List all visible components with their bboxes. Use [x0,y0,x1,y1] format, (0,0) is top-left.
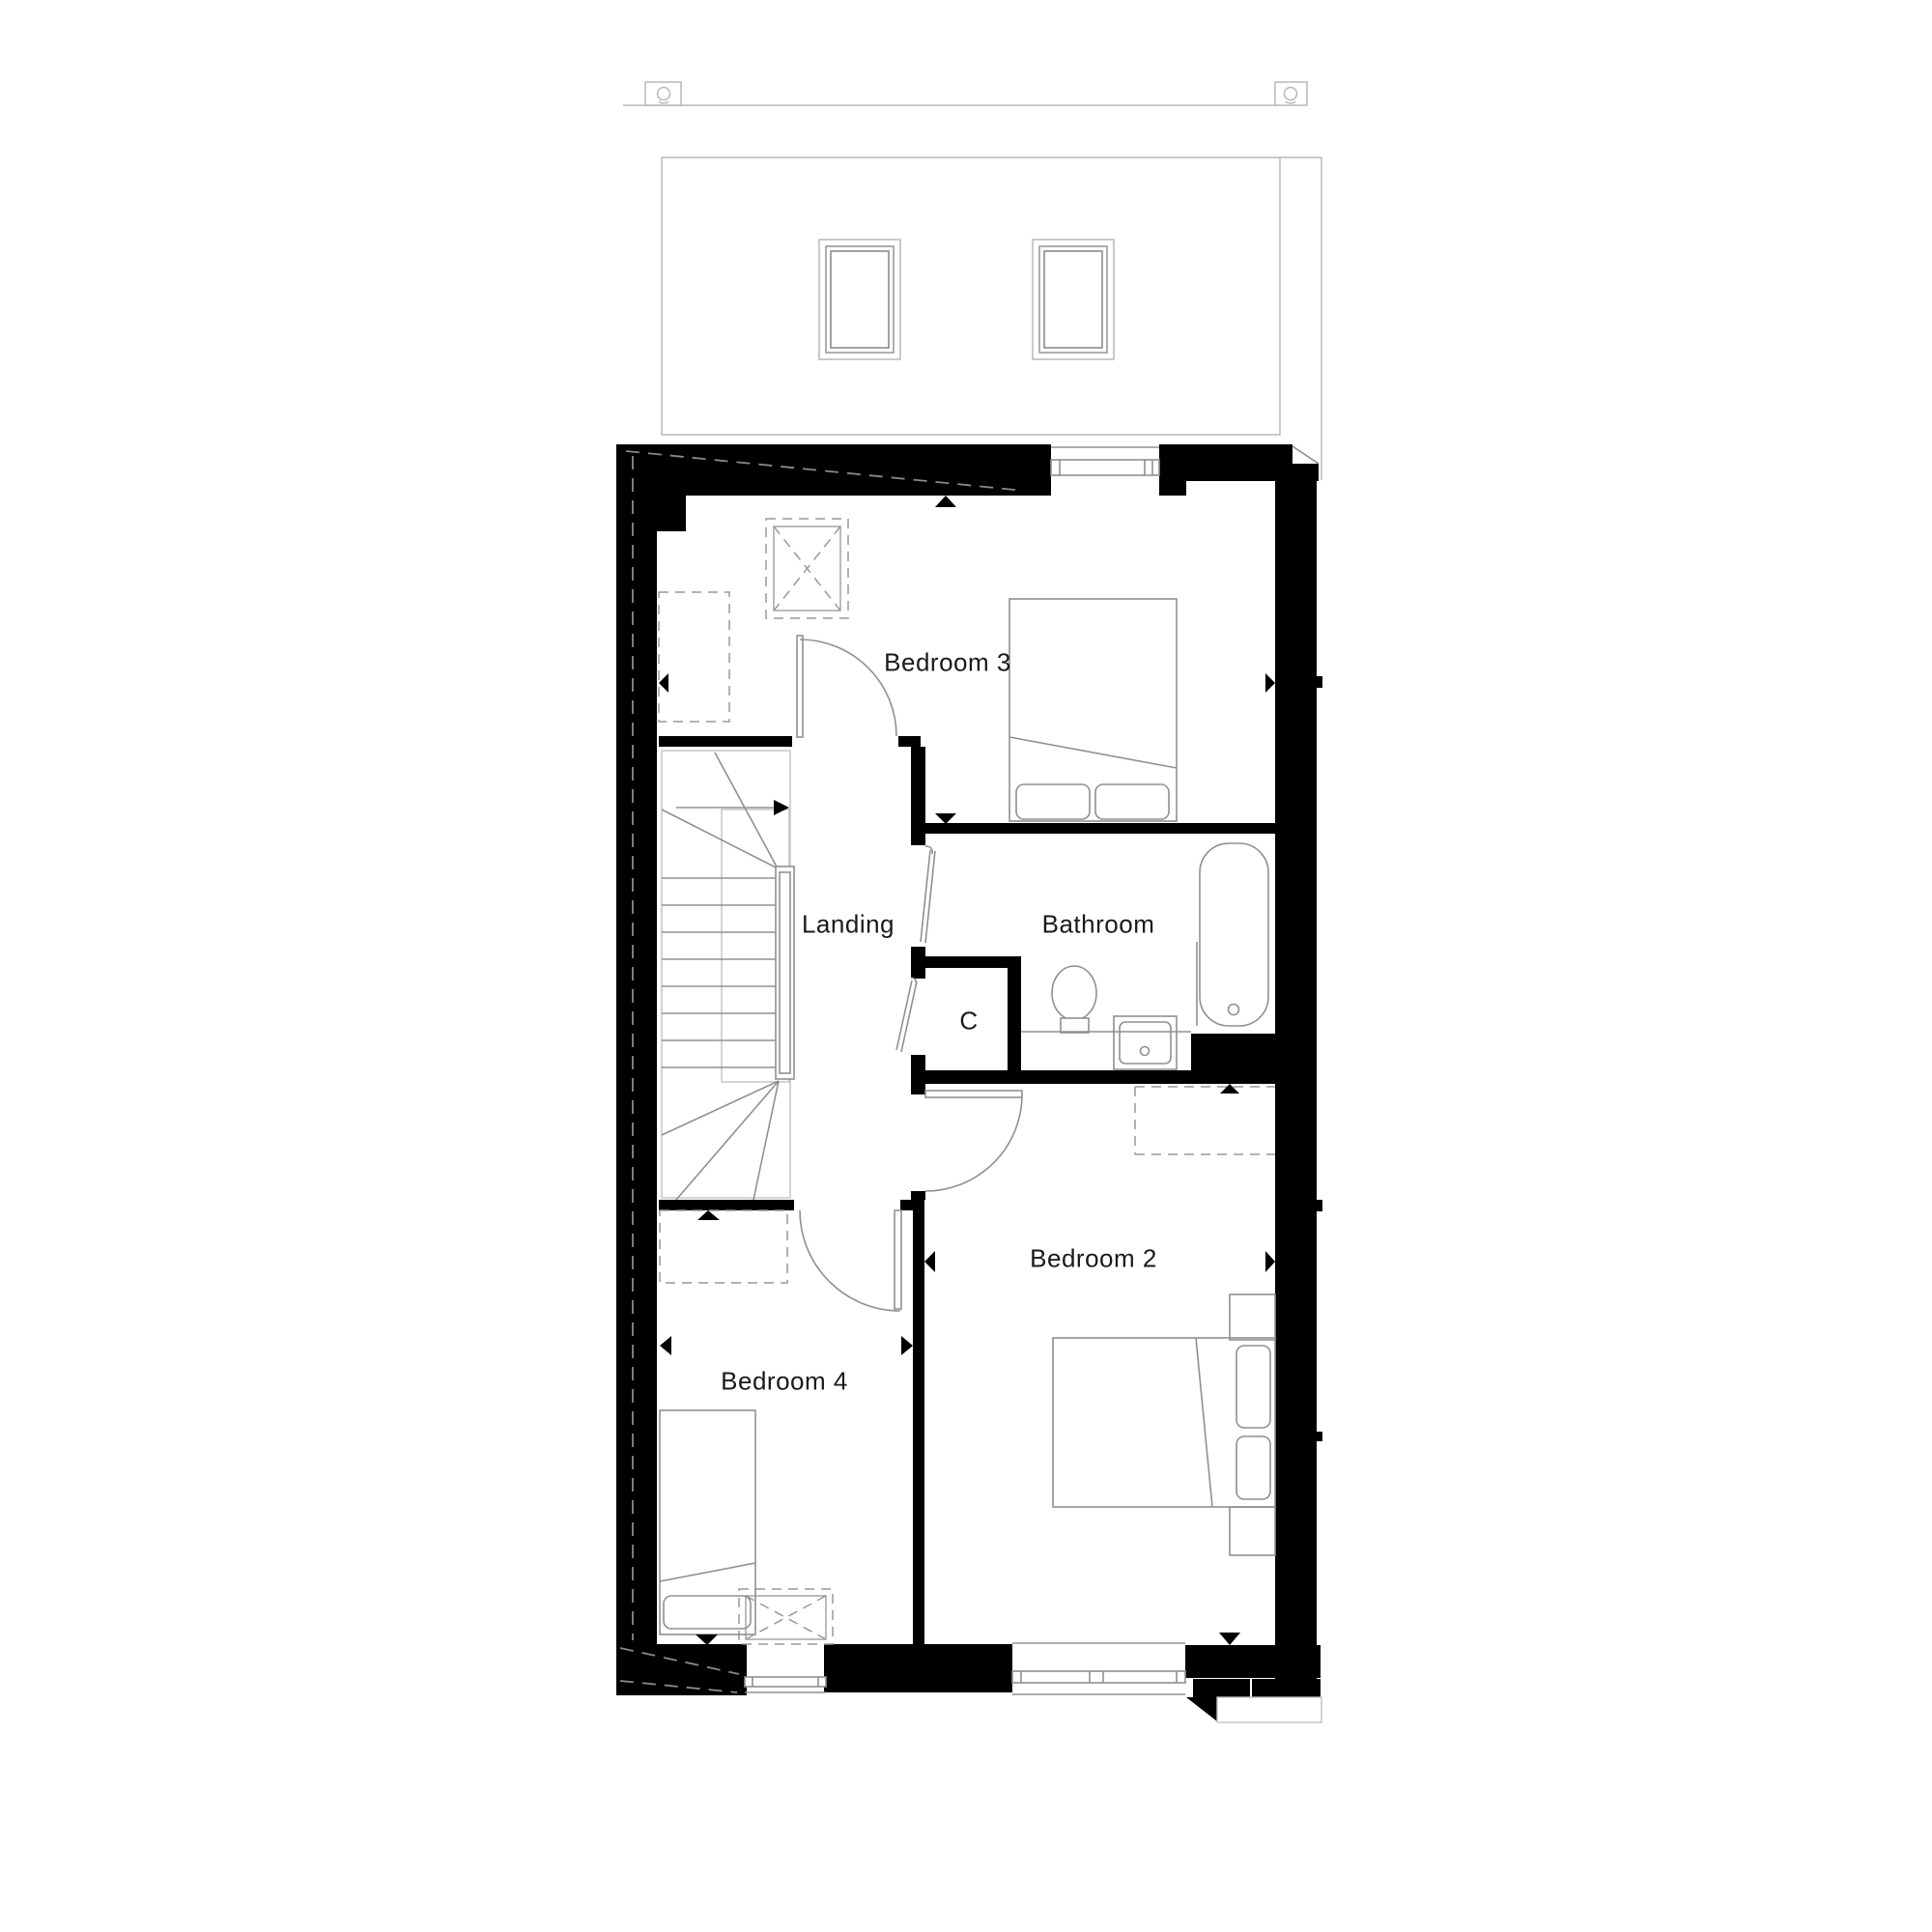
floor-plan-canvas: Bedroom 3 Landing Bathroom C Bedroom 2 B… [0,0,1932,1932]
vent-icon-left [645,82,681,105]
room-label-bedroom4: Bedroom 4 [721,1367,848,1397]
room-label-bedroom2: Bedroom 2 [1030,1244,1157,1274]
roof-outline [623,105,1321,480]
stairs-icon [662,751,794,1200]
door-bedroom2 [925,1091,1022,1191]
floor-plan-drawing [0,0,1932,1932]
window-bedroom3 [1051,447,1159,475]
skylight-icon-left [819,240,900,359]
bed-icon-bedroom3 [1009,599,1177,821]
door-bedroom4 [800,1210,901,1311]
room-label-closet: C [959,1007,978,1037]
rooflight-below-icon [739,1589,833,1644]
room-label-bathroom: Bathroom [1042,910,1155,940]
room-label-landing: Landing [802,910,895,940]
room-label-bedroom3: Bedroom 3 [884,648,1011,678]
bath-icon [1197,843,1268,1026]
vent-icon-right [1275,82,1307,105]
window-bedroom4 [745,1677,826,1692]
door-closet [896,978,917,1052]
basin-icon [1114,1016,1177,1069]
bed-icon-bedroom4 [660,1410,755,1634]
door-bathroom [921,846,935,943]
skylight-icon-right [1033,240,1114,359]
wardrobe-dashed-outline [1135,1087,1275,1154]
door-bedroom3 [797,636,896,737]
interior-walls [659,736,1275,1644]
window-bedroom2 [1012,1643,1185,1694]
bed-icon-bedroom2 [1053,1294,1275,1555]
stair-void-dashed-outline [659,592,729,722]
toilet-icon [1052,966,1096,1033]
loft-hatch-icon [766,519,848,618]
eaves-storage-dashed-outline [660,1210,787,1283]
